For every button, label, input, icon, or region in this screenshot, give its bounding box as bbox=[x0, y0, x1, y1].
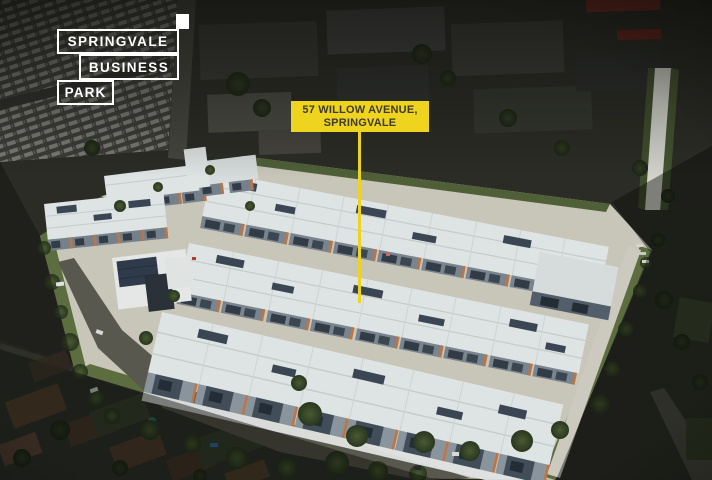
address-callout: 57 WILLOW AVENUE, SPRINGVALE bbox=[291, 101, 429, 132]
brand-line-3: PARK bbox=[65, 85, 107, 100]
brand-line-1: SPRINGVALE bbox=[68, 34, 169, 49]
marketing-image: SPRINGVALE BUSINESS PARK 57 WILLOW AVENU… bbox=[0, 0, 712, 480]
brand-square bbox=[176, 14, 189, 29]
brand-box-business: BUSINESS bbox=[79, 54, 179, 80]
callout-suburb-line: SPRINGVALE bbox=[291, 117, 429, 130]
brand-line-2: BUSINESS bbox=[89, 60, 169, 75]
callout-pointer-line bbox=[358, 131, 361, 303]
brand-box-springvale: SPRINGVALE bbox=[57, 29, 179, 54]
callout-address-line: 57 WILLOW AVENUE, bbox=[291, 104, 429, 117]
brand-box-park: PARK bbox=[57, 80, 114, 105]
